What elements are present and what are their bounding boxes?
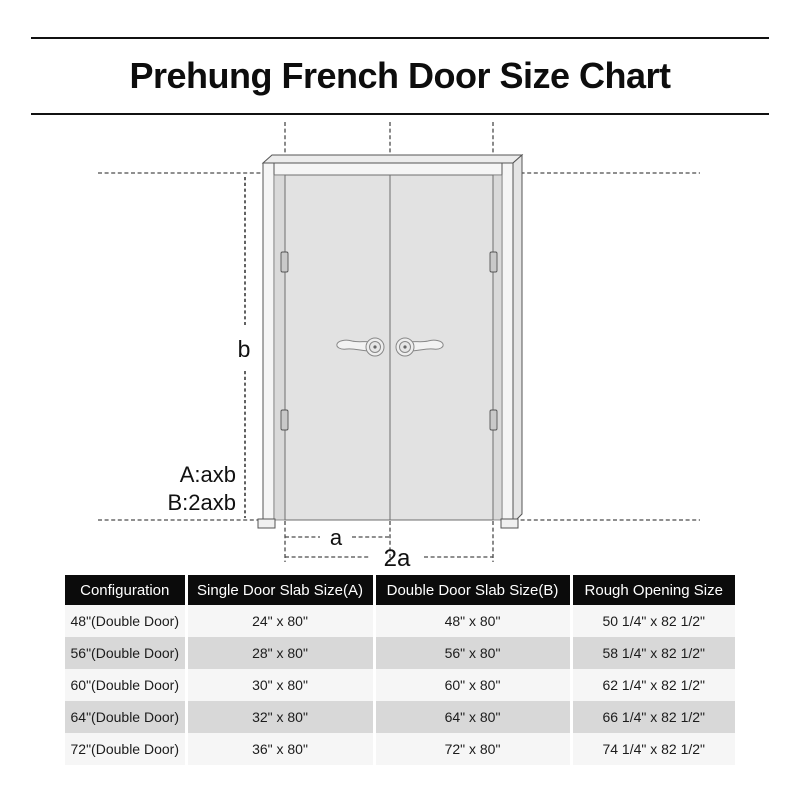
table-row: 48"(Double Door) 24" x 80" 48" x 80" 50 …	[65, 605, 735, 637]
rough-opening-cell: 50 1/4" x 82 1/2"	[571, 605, 735, 637]
table-row: 72"(Double Door) 36" x 80" 72" x 80" 74 …	[65, 733, 735, 765]
single-slab-size-cell: 32" x 80"	[186, 701, 374, 733]
frame-left-reveal	[274, 175, 285, 520]
hinge-icon	[281, 252, 288, 272]
door-dimension-diagram: b a 2a	[0, 115, 800, 570]
double-slab-size-cell: 64" x 80"	[374, 701, 571, 733]
rough-opening-cell: 62 1/4" x 82 1/2"	[571, 669, 735, 701]
frame-top-face	[263, 155, 522, 163]
column-header-configuration: Configuration	[65, 575, 186, 605]
page-title: Prehung French Door Size Chart	[129, 55, 670, 97]
rough-opening-cell: 58 1/4" x 82 1/2"	[571, 637, 735, 669]
height-dimension-label: b	[238, 336, 251, 362]
column-header-rough-opening-size: Rough Opening Size	[571, 575, 735, 605]
single-door-formula: A:axb	[180, 462, 236, 487]
configuration-cell: 60"(Double Door)	[65, 669, 186, 701]
double-width-label: 2a	[384, 545, 411, 570]
single-slab-size-cell: 30" x 80"	[186, 669, 374, 701]
single-slab-size-cell: 24" x 80"	[186, 605, 374, 637]
title-band: Prehung French Door Size Chart	[31, 37, 769, 115]
configuration-cell: 48"(Double Door)	[65, 605, 186, 637]
single-width-label: a	[330, 525, 343, 550]
frame-right-jamb	[502, 163, 513, 527]
configuration-cell: 56"(Double Door)	[65, 637, 186, 669]
frame-right-reveal	[493, 175, 502, 520]
size-formulas: A:axb B:2axb	[168, 462, 237, 515]
door-size-table: Configuration Single Door Slab Size(A) D…	[65, 575, 735, 765]
width-dimension-lines: a 2a	[285, 521, 493, 570]
hinge-icon	[490, 252, 497, 272]
frame-right-foot	[501, 519, 518, 528]
top-dimension-extension-lines	[285, 122, 493, 158]
column-header-single-door-slab-size: Single Door Slab Size(A)	[186, 575, 374, 605]
table-header-row: Configuration Single Door Slab Size(A) D…	[65, 575, 735, 605]
table-row: 56"(Double Door) 28" x 80" 56" x 80" 58 …	[65, 637, 735, 669]
hinge-icon	[490, 410, 497, 430]
frame-left-jamb	[263, 163, 274, 527]
height-dimension-line: b	[238, 177, 251, 518]
table-row: 64"(Double Door) 32" x 80" 64" x 80" 66 …	[65, 701, 735, 733]
configuration-cell: 72"(Double Door)	[65, 733, 186, 765]
double-door-formula: B:2axb	[168, 490, 237, 515]
column-header-double-door-slab-size: Double Door Slab Size(B)	[374, 575, 571, 605]
rough-opening-cell: 74 1/4" x 82 1/2"	[571, 733, 735, 765]
hinge-icon	[281, 410, 288, 430]
rough-opening-cell: 66 1/4" x 82 1/2"	[571, 701, 735, 733]
configuration-cell: 64"(Double Door)	[65, 701, 186, 733]
frame-left-foot	[258, 519, 275, 528]
double-slab-size-cell: 48" x 80"	[374, 605, 571, 637]
door-slabs	[285, 175, 493, 520]
single-slab-size-cell: 36" x 80"	[186, 733, 374, 765]
single-slab-size-cell: 28" x 80"	[186, 637, 374, 669]
frame-right-face	[513, 155, 522, 523]
table-row: 60"(Double Door) 30" x 80" 60" x 80" 62 …	[65, 669, 735, 701]
frame-header	[263, 163, 513, 175]
double-slab-size-cell: 72" x 80"	[374, 733, 571, 765]
double-slab-size-cell: 60" x 80"	[374, 669, 571, 701]
double-slab-size-cell: 56" x 80"	[374, 637, 571, 669]
